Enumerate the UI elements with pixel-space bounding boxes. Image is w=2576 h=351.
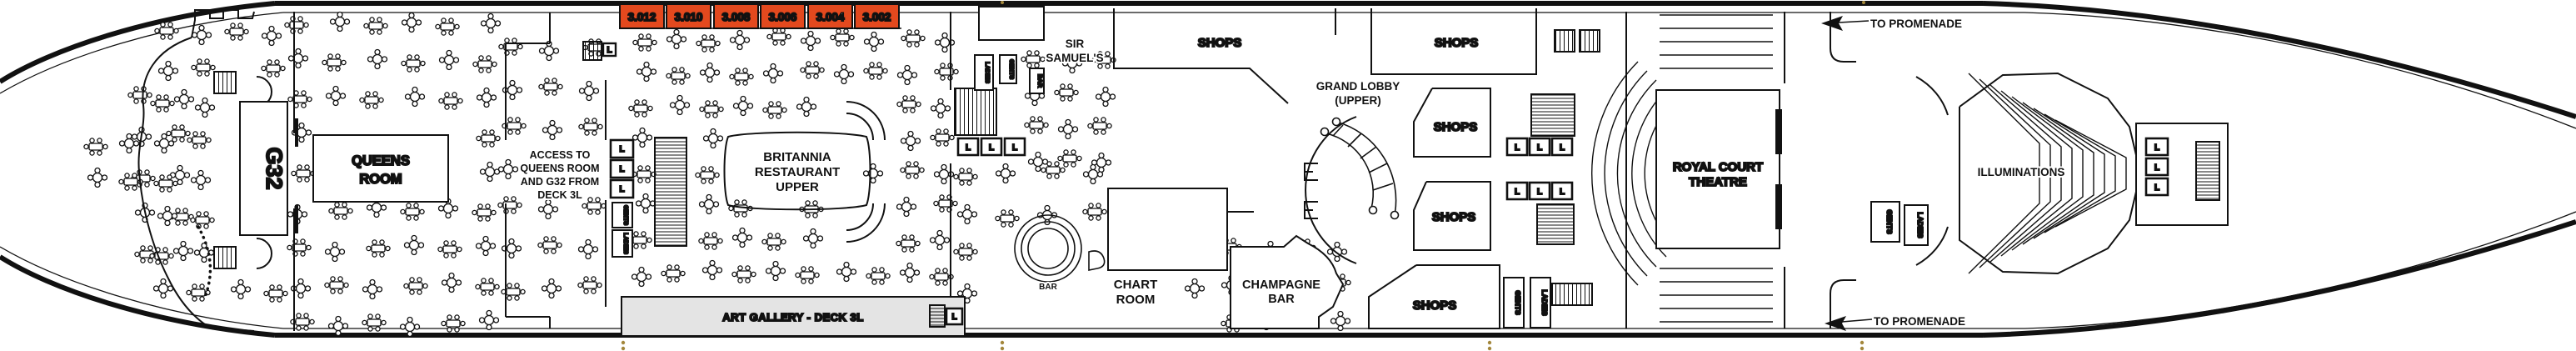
gents-room xyxy=(1871,202,1900,242)
escalator xyxy=(1537,204,1574,244)
shops-label: SHOPS xyxy=(1413,298,1457,313)
shops-label: SHOPS xyxy=(1434,120,1478,134)
lift-icon: L xyxy=(2154,163,2159,173)
lift-icon: L xyxy=(2154,143,2159,153)
cabin-3008[interactable]: 3.008 xyxy=(714,4,758,28)
fire-zone-marker-dot xyxy=(622,347,625,350)
theatre-door xyxy=(1776,185,1781,228)
ladies-label: LADIES xyxy=(984,62,990,83)
piano-icon xyxy=(1089,251,1105,270)
promenade-arrow-head-top xyxy=(1821,16,1843,31)
svg-text:3.004: 3.004 xyxy=(816,11,845,23)
to-promenade-label-bottom: TO PROMENADE xyxy=(1874,315,1965,328)
chart-room-shop-box xyxy=(1108,188,1227,270)
champagne-bar-label-line2: BAR xyxy=(1268,293,1295,306)
promenade: TO PROMENADE TO PROMENADE GENTS LADIES xyxy=(1821,12,1965,331)
promenade-curve-top xyxy=(1916,77,1948,115)
cabin-3002[interactable]: 3.002 xyxy=(855,4,899,28)
lift-icon: L xyxy=(1515,188,1520,197)
g32-stair-2 xyxy=(214,247,236,268)
stair xyxy=(1552,283,1592,305)
lift-icon: L xyxy=(1515,143,1520,153)
fire-zone-marker-dot xyxy=(1001,1,1004,4)
sir-samuels-label-line1: SIR xyxy=(1066,38,1085,50)
lift-icon: L xyxy=(951,313,956,322)
stair xyxy=(1580,30,1600,52)
gents-label: GENTS xyxy=(1885,209,1894,234)
chart-room-label-line2: ROOM xyxy=(1116,293,1156,307)
grand-lobby-label-line1: GRAND LOBBY xyxy=(1316,80,1400,93)
access-note-line2: QUEENS ROOM xyxy=(520,163,599,174)
svg-text:3.008: 3.008 xyxy=(722,11,751,23)
shops-label: SHOPS xyxy=(1198,36,1242,50)
deck-plan: G32 QUEENS ROOM ACCESS TO QUEENS ROOM AN… xyxy=(0,0,2576,351)
chart-room-label-line1: CHART xyxy=(1114,278,1158,292)
g32-stair xyxy=(214,72,236,93)
theatre-door xyxy=(1776,110,1781,153)
lift-icon: L xyxy=(1537,188,1542,197)
illuminations-label: ILLUMINATIONS xyxy=(1978,166,2065,178)
ladies-label: LADIES xyxy=(622,233,628,254)
fire-zone-marker-dot xyxy=(1862,1,1865,4)
svg-text:3.006: 3.006 xyxy=(769,11,797,23)
lift-icon: L xyxy=(1012,143,1017,153)
shops-label: SHOPS xyxy=(1432,210,1476,224)
lift-icon: L xyxy=(607,46,612,55)
bar-label: BAR xyxy=(1036,74,1044,88)
gents-label: GENTS xyxy=(1008,59,1014,79)
promenade-arrow-shaft-top xyxy=(1839,21,1869,23)
fire-zone-marker-dot xyxy=(1001,347,1004,350)
britannia-label-line2: RESTAURANT xyxy=(755,165,840,179)
grand-staircase xyxy=(1321,118,1399,219)
shops-5-outline xyxy=(1369,265,1500,328)
britannia-curved-stair-bottom xyxy=(846,203,885,242)
gents-label: GENTS xyxy=(622,205,628,225)
escalator xyxy=(655,138,686,246)
lobby-well-arc xyxy=(1305,117,1356,263)
ladies-label: LADIES xyxy=(1916,212,1925,238)
access-note-line4: DECK 3L xyxy=(537,189,582,201)
g32-stair-curve-bottom xyxy=(257,238,272,268)
shops-label: SHOPS xyxy=(1435,36,1479,50)
cabin-3012[interactable]: 3.012 xyxy=(620,4,664,28)
shops-1-outline xyxy=(1114,8,1335,103)
ladies-label: LADIES xyxy=(1540,289,1549,316)
lift-icon: L xyxy=(619,185,624,194)
lobby-brackets xyxy=(1305,163,1318,218)
lift-icon: L xyxy=(619,145,624,154)
art-gallery-label: ART GALLERY - DECK 3L xyxy=(722,311,863,323)
fire-zone-marker-dot xyxy=(622,341,625,344)
illuminations: ILLUMINATIONS L L L xyxy=(1959,73,2228,273)
gents-room xyxy=(612,203,632,228)
gents-label: GENTS xyxy=(1514,290,1522,315)
lift-icon: L xyxy=(619,165,624,174)
grand-lobby-label-line2: (UPPER) xyxy=(1335,94,1381,107)
g32-label: G32 xyxy=(262,147,287,189)
stair xyxy=(930,305,945,327)
royal-court-label-line1: ROYAL COURT xyxy=(1673,160,1763,174)
fire-zone-marker-dot xyxy=(1488,341,1491,344)
queens-floor-box xyxy=(313,135,448,202)
fire-zone-marker-dot xyxy=(1860,341,1864,344)
svg-text:3.012: 3.012 xyxy=(628,11,656,23)
britannia-label-line1: BRITANNIA xyxy=(763,150,831,164)
svg-text:3.002: 3.002 xyxy=(863,11,891,23)
access-note-line1: ACCESS TO xyxy=(530,149,591,161)
chart-room-area: BAR CHART ROOM CHAMPAGNE BAR xyxy=(1015,188,1343,328)
champagne-bar-label-line1: CHAMPAGNE xyxy=(1242,278,1320,292)
lift-icon: L xyxy=(1537,143,1542,153)
cabin-3006[interactable]: 3.006 xyxy=(761,4,805,28)
sir-samuels-label-line2: SAMUEL'S xyxy=(1046,52,1103,64)
lift-icon: L xyxy=(1560,143,1565,153)
stair xyxy=(955,88,996,135)
ladies-room xyxy=(612,230,632,257)
stair xyxy=(1555,30,1575,52)
queens-room-label-line2: ROOM xyxy=(359,172,402,187)
access-note-line3: AND G32 FROM xyxy=(521,176,599,188)
cabin-3004[interactable]: 3.004 xyxy=(808,4,852,28)
stair xyxy=(583,42,602,60)
queens-room-label-line1: QUEENS xyxy=(352,153,410,168)
highlighted-cabins: 3.012 3.010 3.008 3.006 3.004 3.002 xyxy=(620,4,899,28)
lift-icon: L xyxy=(966,143,971,153)
fire-zone-marker-dot xyxy=(1488,347,1491,350)
lift-icon: L xyxy=(1560,188,1565,197)
svg-text:3.010: 3.010 xyxy=(675,11,703,23)
shops-grand-lobby: SHOPS SHOPS SHOPS SHOPS SHOPS GRAND LOBB… xyxy=(1114,8,1600,328)
britannia-label-line3: UPPER xyxy=(776,180,819,194)
to-promenade-label-top: TO PROMENADE xyxy=(1870,18,1962,30)
fire-zone-marker-dot xyxy=(1860,347,1864,350)
art-gallery: ART GALLERY - DECK 3L L xyxy=(622,297,965,336)
lift-icon: L xyxy=(989,143,994,153)
lift-icon: L xyxy=(2154,183,2159,193)
escalator xyxy=(1531,94,1575,136)
stair xyxy=(2196,142,2219,200)
fire-zone-marker-dot xyxy=(1001,341,1004,344)
cabin-3010[interactable]: 3.010 xyxy=(666,4,711,28)
royal-court-label-line2: THEATRE xyxy=(1689,175,1747,189)
room-box xyxy=(979,7,1044,40)
royal-court-theatre: ROYAL COURT THEATRE xyxy=(1592,12,1785,328)
bar-label: BAR xyxy=(1039,283,1057,292)
promenade-arrow-shaft-bottom xyxy=(1842,319,1872,322)
